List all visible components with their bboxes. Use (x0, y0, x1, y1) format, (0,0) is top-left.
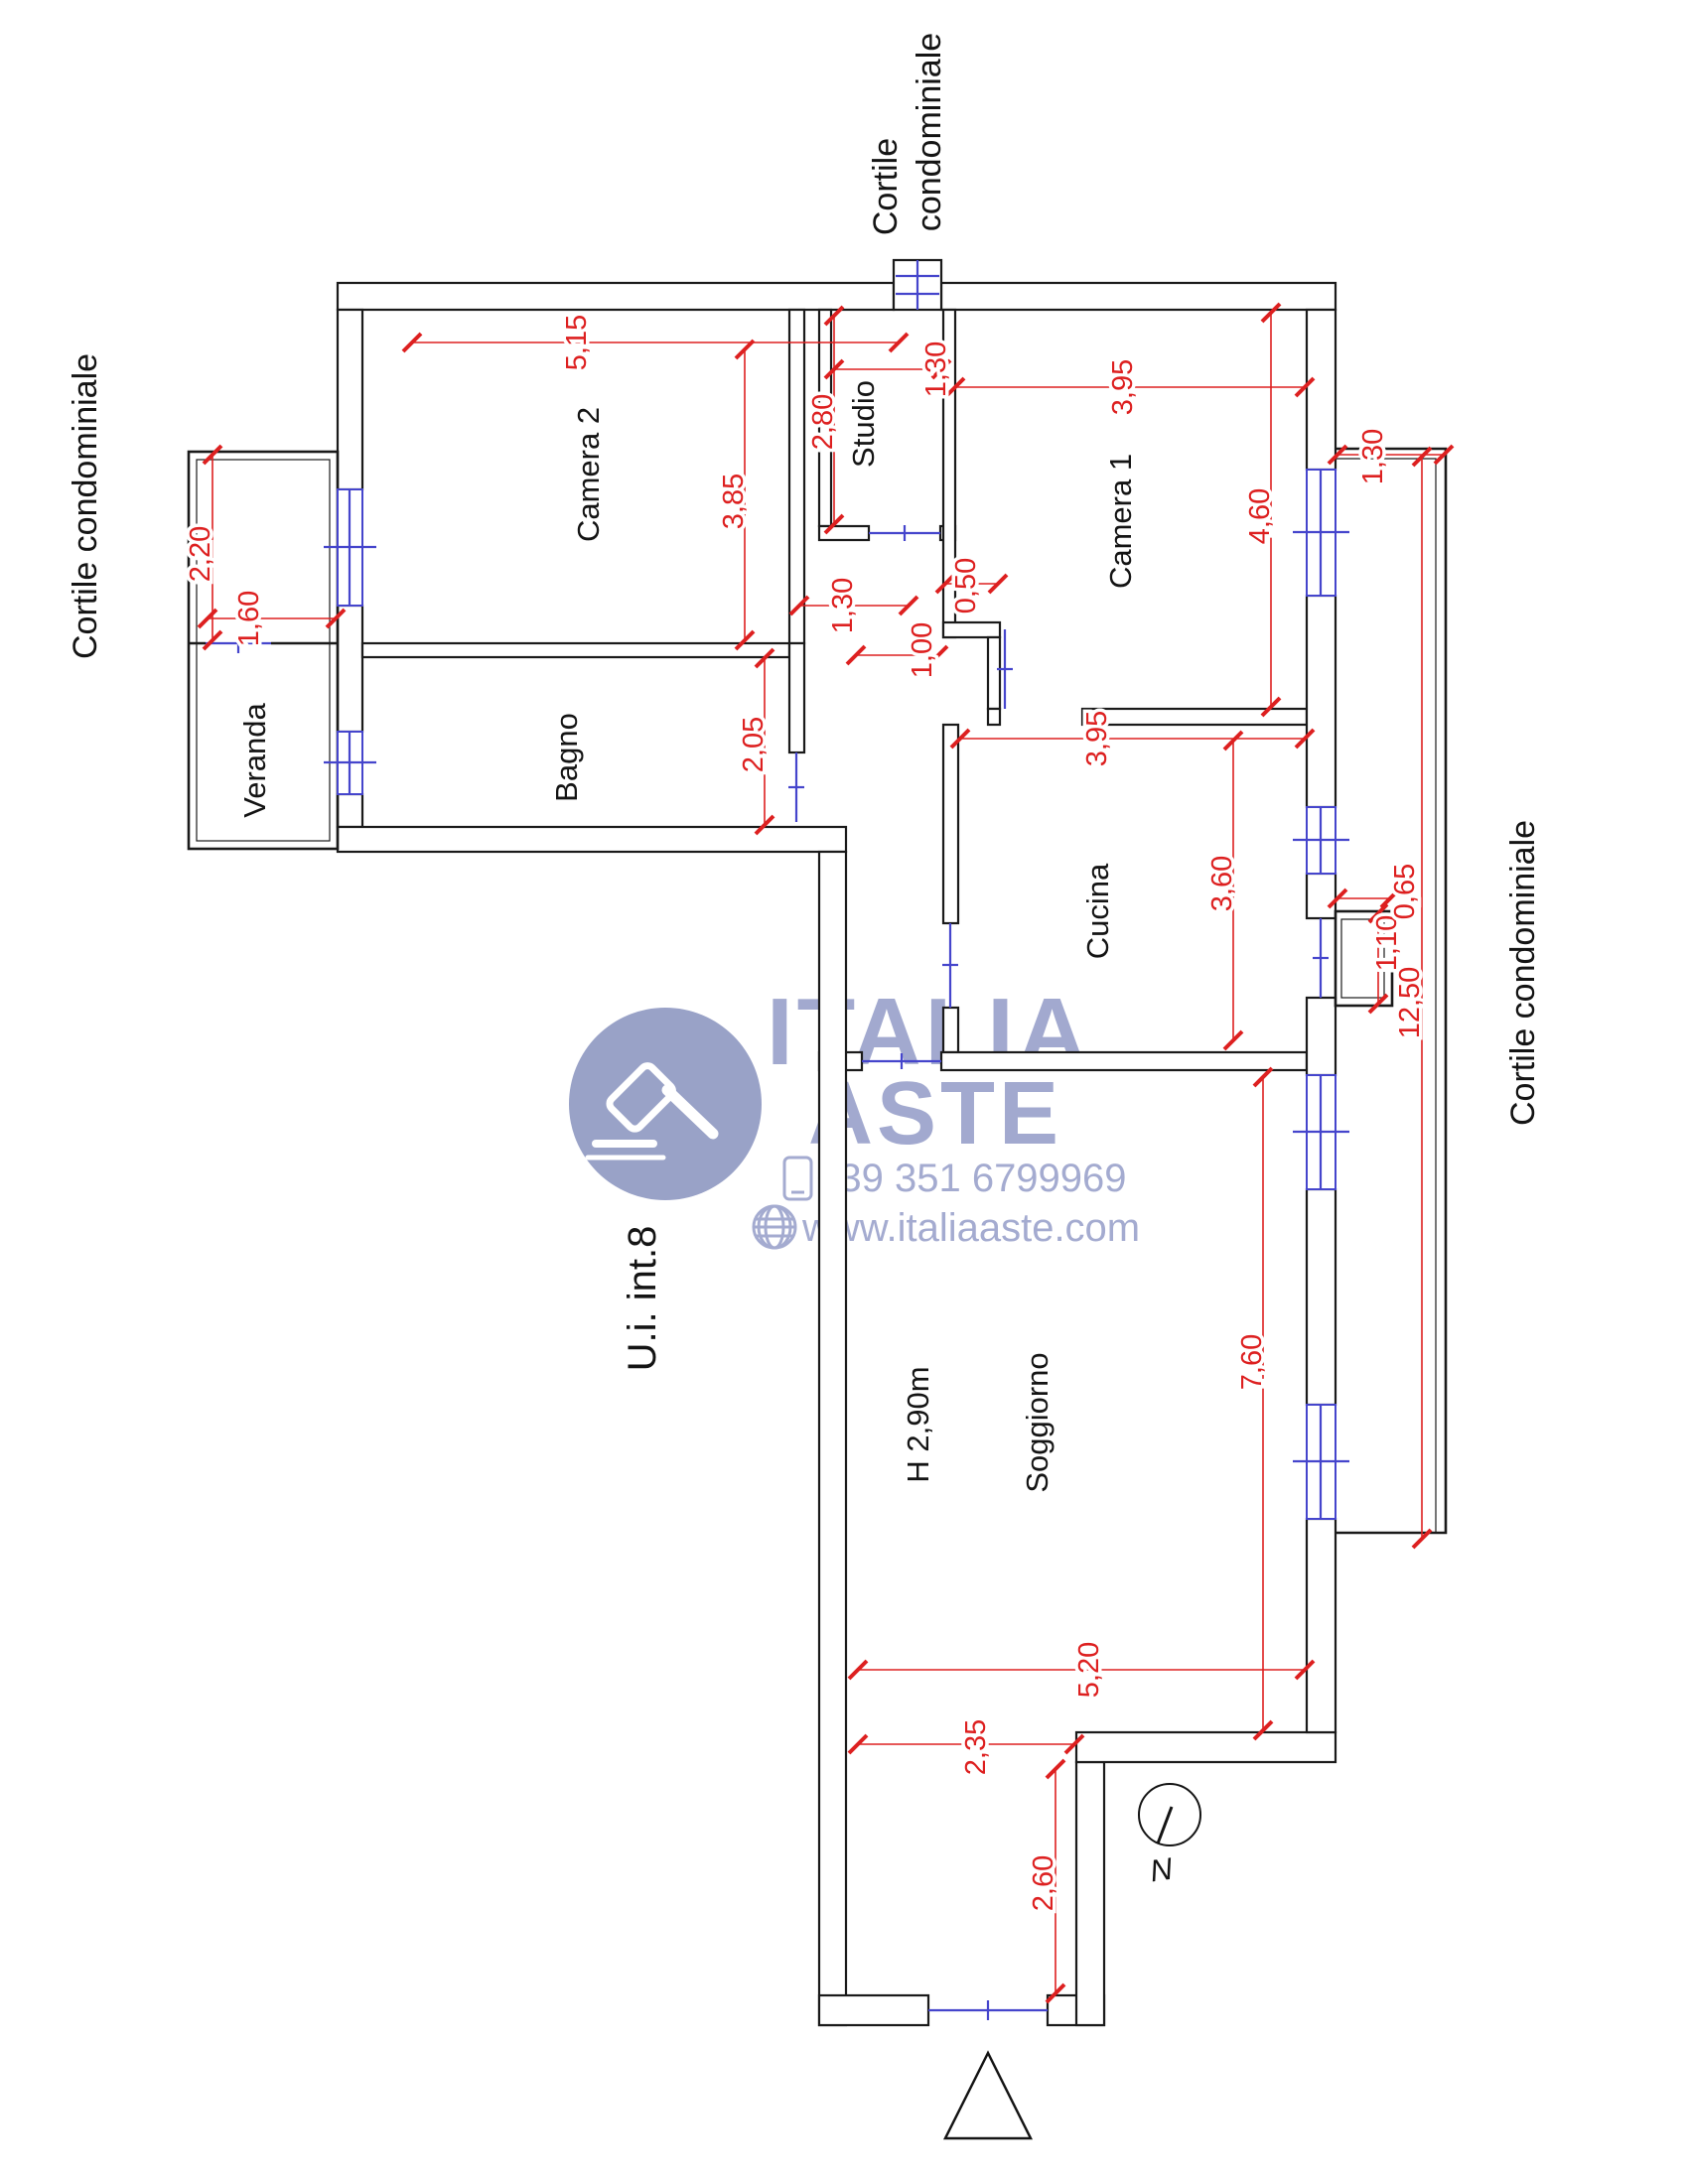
watermark-website: www.italiaaste.com (801, 1206, 1140, 1250)
room-label-camera2: Camera 2 (571, 407, 606, 542)
dim-entry-depth: 2,60 (1028, 1855, 1059, 1911)
dim-camera1-width: 3,95 (1107, 359, 1139, 415)
courtyard-label-left: Cortile condominiale (67, 353, 104, 659)
dim-camera1-door-width: 1,00 (907, 622, 938, 678)
dim-studio-width: 1,30 (920, 341, 952, 397)
door-entry-icon (928, 2000, 1048, 2020)
door-bagno-icon (788, 752, 804, 822)
room-label-studio: Studio (846, 380, 881, 468)
entrance-arrow-icon (945, 2053, 1031, 2138)
dim-soggiorno-width: 5,20 (1073, 1642, 1105, 1698)
dim-camera1-depth: 4,60 (1244, 488, 1276, 544)
door-balcony-icon (1313, 918, 1329, 998)
balcony-outline (1336, 449, 1446, 1533)
dim-balcony-step-length: 1,10 (1371, 915, 1403, 971)
dim-camera2-depth: 3,85 (718, 474, 750, 529)
phone-icon (784, 1158, 811, 1199)
floor-plan-page: ITALIA ASTE +39 351 6799969 www.italiaas… (0, 0, 1688, 2184)
window-soggiorno2-icon (1293, 1405, 1349, 1519)
dim-balcony-top-width: 1,30 (1357, 429, 1389, 484)
watermark-phone: +39 351 6799969 (816, 1157, 1127, 1200)
dim-cucina-depth: 3,60 (1206, 856, 1238, 911)
dim-cucina-width: 3,95 (1081, 711, 1113, 766)
dim-balcony-length: 12,50 (1394, 967, 1426, 1039)
dim-soggiorno-depth: 7,60 (1236, 1334, 1268, 1390)
room-label-veranda: Veranda (237, 702, 272, 817)
dim-bagno-depth: 2,05 (738, 717, 770, 772)
door-courtyard-top-icon (894, 260, 941, 310)
dim-entry-offset: 2,35 (960, 1719, 992, 1775)
window-camera1-icon (1293, 470, 1349, 596)
dim-hall-width: 1,30 (827, 578, 859, 633)
dim-balcony-step-depth: 0,65 (1389, 864, 1421, 919)
dim-studio-depth: 2,80 (807, 394, 839, 450)
dim-wall-jog: 0,50 (950, 558, 982, 614)
walls (338, 283, 1336, 2025)
window-bagno-icon (324, 732, 376, 794)
door-studio-icon (869, 525, 940, 541)
room-label-soggiorno: Soggiorno (1020, 1352, 1055, 1492)
room-label-bagno: Bagno (549, 713, 584, 802)
watermark-logo: ITALIA ASTE +39 351 6799969 www.italiaas… (569, 979, 1140, 1250)
dim-veranda-upper-depth: 2,20 (185, 526, 216, 582)
unit-label: U.i. int.8 (621, 1226, 664, 1372)
north-label: N (1148, 1851, 1176, 1889)
ceiling-height-label: H 2,90m (901, 1366, 935, 1482)
dim-camera2-width: 5,15 (561, 315, 593, 370)
north-indicator: N (1139, 1784, 1200, 1888)
dim-veranda-door-width: 1,60 (233, 591, 265, 646)
courtyard-label-right: Cortile condominiale (1504, 820, 1542, 1126)
courtyard-label-top-line2: condominiale (911, 33, 948, 231)
window-soggiorno1-icon (1293, 1075, 1349, 1189)
window-camera2-icon (324, 489, 376, 606)
courtyard-label-top-line1: Cortile (867, 138, 905, 235)
globe-icon (754, 1206, 795, 1248)
room-label-camera1: Camera 1 (1103, 454, 1138, 589)
room-label-cucina: Cucina (1080, 863, 1115, 959)
floor-plan-svg: ITALIA ASTE +39 351 6799969 www.italiaas… (0, 0, 1688, 2184)
window-cucina-icon (1293, 807, 1349, 874)
